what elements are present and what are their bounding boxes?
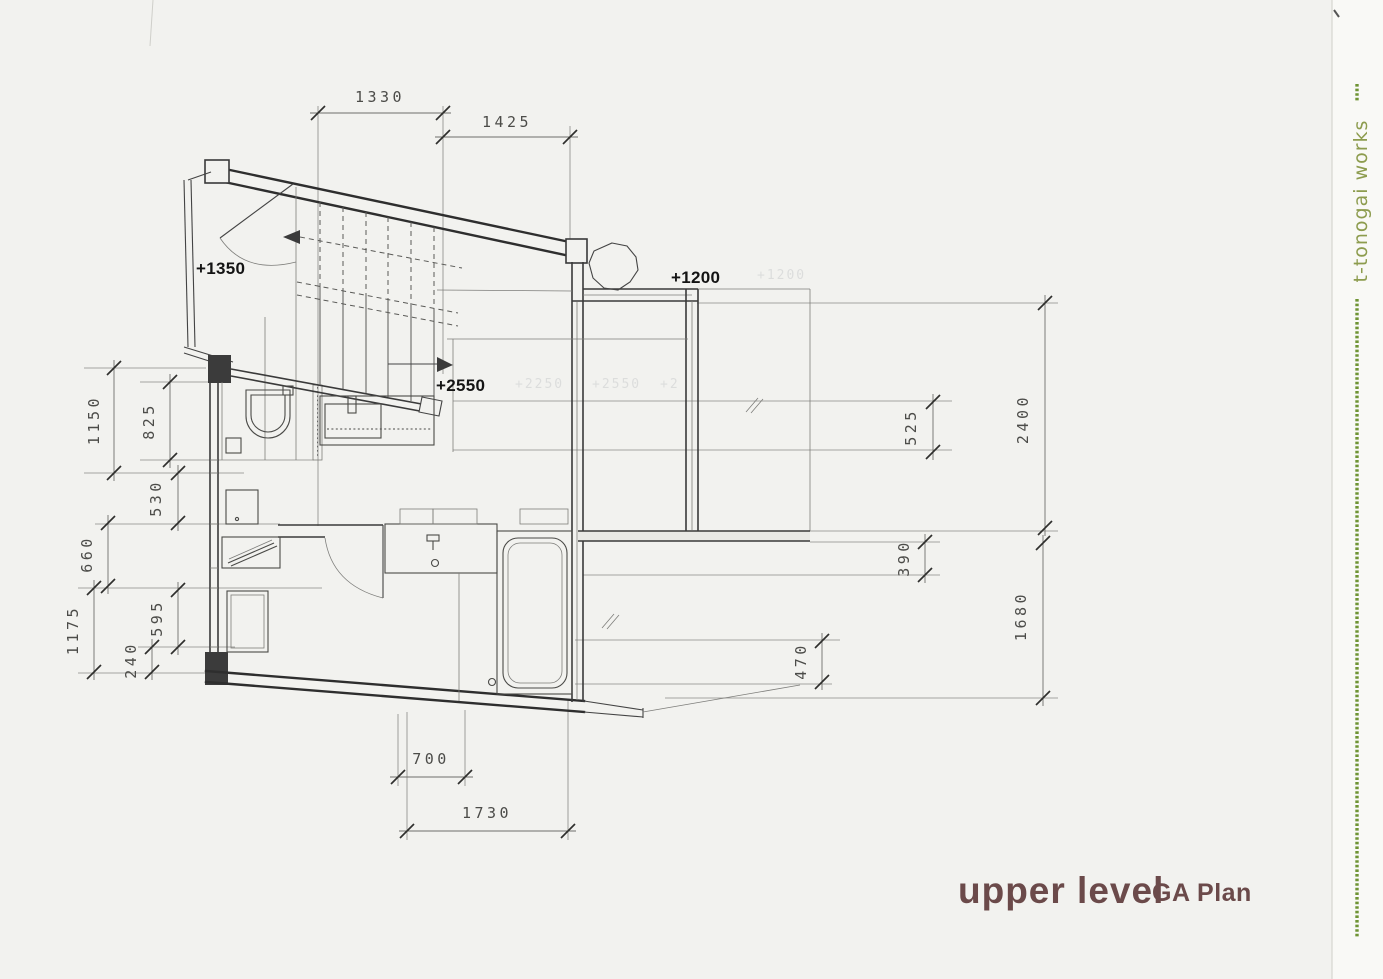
drawing-title: upper level <box>958 870 1164 911</box>
dim-label-1330: 1330 <box>355 88 405 106</box>
ghost-mark-4: +1200 <box>757 268 806 283</box>
level-label-stair: +2550 <box>436 376 485 395</box>
column-mid-left <box>208 355 231 383</box>
dim-label-825: 825 <box>140 402 158 440</box>
dim-label-390: 390 <box>895 539 913 577</box>
dim-label-1425: 1425 <box>482 113 532 131</box>
wall-post-right <box>566 239 587 263</box>
dim-label-660: 660 <box>78 535 96 573</box>
dim-label-530: 530 <box>147 479 165 517</box>
level-label-terrace: +1200 <box>671 268 720 287</box>
scanned-drawing-page: 1330 1425 1150 825 530 660 1175 595 240 … <box>0 0 1383 979</box>
dim-label-1150: 1150 <box>85 395 103 445</box>
column-bottom-left <box>205 652 228 685</box>
dim-label-700: 700 <box>412 750 450 768</box>
dim-label-1175: 1175 <box>64 605 82 655</box>
dim-label-240: 240 <box>122 641 140 679</box>
dim-label-1680: 1680 <box>1012 591 1030 641</box>
drawing-subtitle: GA Plan <box>1152 879 1252 907</box>
dim-label-1730: 1730 <box>462 804 512 822</box>
ghost-mark-2: +2550 <box>592 377 641 392</box>
level-label-room: +1350 <box>196 259 245 278</box>
brand-text: t-tonogai works <box>1350 120 1372 283</box>
dim-label-595: 595 <box>148 599 166 637</box>
ghost-mark-1: +2250 <box>515 377 564 392</box>
stair-newel-block <box>419 397 442 416</box>
dim-label-2400: 2400 <box>1014 394 1032 444</box>
paper-background <box>0 0 1383 979</box>
floor-plan-canvas: 1330 1425 1150 825 530 660 1175 595 240 … <box>0 0 1383 979</box>
dim-label-470: 470 <box>792 642 810 680</box>
dim-label-525: 525 <box>902 408 920 446</box>
ghost-mark-3: +2 <box>660 377 680 392</box>
wall-post-left <box>205 160 229 183</box>
